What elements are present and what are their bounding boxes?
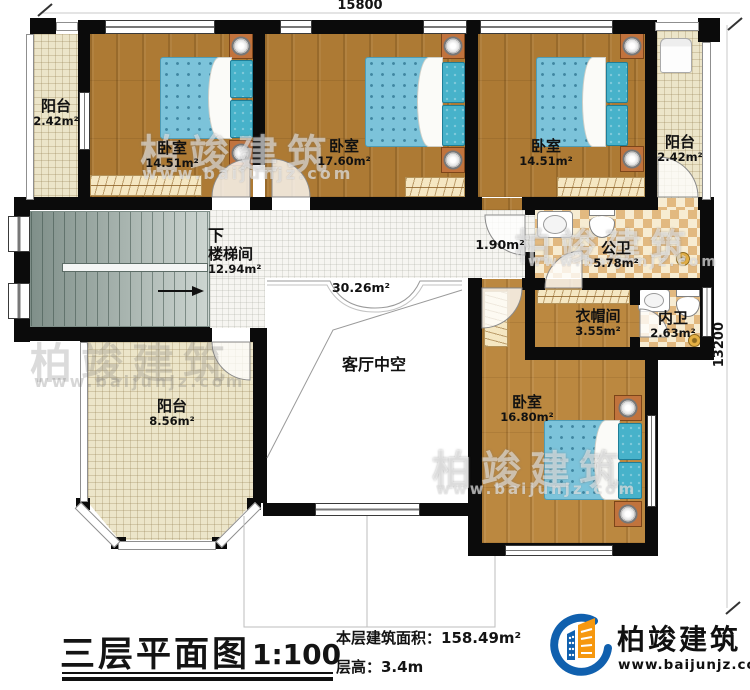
floor-area-text: 本层建筑面积：158.49m²	[336, 627, 521, 648]
bed-bedroom-2	[365, 57, 443, 147]
dimension-width: 15800	[330, 0, 390, 13]
window	[280, 20, 312, 34]
wall	[215, 20, 280, 34]
nightstand	[229, 140, 253, 166]
lamp-icon	[623, 150, 642, 169]
brand-url: www.baijunjz.com	[618, 657, 750, 673]
room-label-balcony-top-left: 阳台 2.42m²	[33, 98, 78, 128]
wardrobe-bedroom-2	[405, 177, 465, 197]
nightstand	[620, 146, 644, 172]
wall	[630, 288, 640, 305]
blanket	[208, 57, 232, 139]
title-underline	[62, 672, 333, 674]
wall	[30, 18, 56, 34]
window	[702, 287, 712, 337]
wardrobe-bedroom-4	[484, 291, 508, 347]
railing	[80, 342, 88, 502]
wall	[250, 197, 272, 210]
window	[423, 20, 467, 34]
lamp-icon	[444, 37, 463, 56]
railing	[702, 42, 711, 200]
pillow	[618, 462, 642, 499]
wall	[30, 197, 212, 210]
bedroom-3-door-threshold	[482, 198, 522, 210]
window	[505, 545, 613, 556]
brand-logo-icon	[540, 612, 614, 686]
drawing-scale: 1:100	[252, 638, 341, 671]
wall	[645, 20, 657, 207]
wall	[465, 20, 478, 207]
area-label-passage: 1.90m²	[475, 237, 524, 252]
sink	[537, 211, 573, 238]
room-label-living-void: 客厅中空	[342, 356, 406, 374]
wall	[263, 503, 315, 516]
blanket	[582, 57, 606, 147]
window	[647, 415, 656, 507]
room-label-balcony-top-right: 阳台 2.42m²	[657, 134, 702, 164]
nightstand	[441, 147, 465, 173]
brand-name: 柏竣建筑	[617, 618, 741, 658]
hallway-strip-floor	[210, 278, 265, 328]
room-label-bedroom-1: 卧室 14.51m²	[145, 140, 198, 170]
lamp-icon	[619, 505, 638, 524]
pillow	[442, 105, 465, 146]
lamp-icon	[619, 399, 638, 418]
wall	[468, 278, 482, 546]
wall	[418, 503, 470, 516]
floor-drain-icon	[676, 252, 690, 266]
blanket	[594, 420, 620, 500]
wall	[698, 18, 720, 42]
nightstand	[441, 33, 465, 59]
room-label-stairwell: 下 楼梯间 12.94m²	[208, 226, 261, 277]
floor-plan: 柏竣建筑 www.baijunjz.com 柏竣建筑 www.baijunjz.…	[0, 0, 750, 690]
bedroom-4-door-threshold	[482, 279, 522, 288]
pillow	[230, 60, 253, 98]
wall	[535, 347, 714, 360]
bed-bedroom-4	[544, 420, 620, 500]
window	[105, 20, 215, 34]
nightstand	[229, 33, 253, 59]
pillow	[618, 423, 642, 460]
living-void-floor	[267, 278, 468, 503]
window	[480, 20, 613, 34]
lamp-icon	[444, 151, 463, 170]
wall	[522, 197, 658, 210]
pillow	[230, 100, 253, 138]
toilet	[589, 206, 615, 238]
room-label-bedroom-3: 卧室 14.51m²	[519, 138, 572, 168]
window	[8, 283, 30, 319]
railing	[118, 541, 216, 550]
window	[8, 216, 30, 252]
area-label-hallway: 30.26m²	[332, 280, 390, 295]
room-label-ensuite-bathroom: 内卫 2.63m²	[650, 310, 695, 340]
nightstand	[614, 501, 642, 527]
floor-height-text: 层高：3.4m	[336, 656, 423, 677]
dimension-height: 13200	[712, 322, 727, 367]
wardrobe-bedroom-3	[557, 177, 645, 197]
basin-icon	[543, 215, 567, 234]
wall	[253, 342, 267, 503]
pillow	[606, 105, 628, 146]
room-label-bedroom-2: 卧室 17.60m²	[317, 138, 370, 168]
railing	[56, 22, 78, 31]
wall	[525, 252, 535, 360]
room-label-balcony-bottom-left: 阳台 8.56m²	[149, 398, 194, 428]
washing-machine	[660, 38, 692, 73]
wall	[253, 20, 265, 165]
wall	[525, 197, 535, 215]
stair-handrail	[62, 263, 208, 272]
lamp-icon	[623, 37, 642, 56]
basin-icon	[644, 293, 664, 308]
lamp-icon	[232, 37, 251, 56]
pillow	[442, 62, 465, 103]
blanket	[417, 57, 443, 147]
drawing-title: 三层平面图	[60, 626, 250, 677]
balcony-bottom-left-floor	[88, 342, 253, 540]
railing	[655, 22, 699, 31]
title-underline	[62, 677, 333, 681]
cloakroom-rack	[537, 289, 630, 304]
nightstand	[620, 33, 644, 59]
pillow	[606, 62, 628, 103]
bathroom-balcony-threshold	[658, 198, 698, 210]
nightstand	[614, 395, 642, 421]
wall	[582, 278, 700, 290]
room-label-public-bathroom: 公卫 5.78m²	[593, 240, 638, 270]
wall	[310, 197, 482, 210]
balcony-door-window	[79, 92, 90, 150]
toilet-bowl-icon	[589, 216, 615, 238]
cloakroom-door-threshold	[545, 279, 582, 288]
wall	[312, 20, 423, 34]
wall	[80, 328, 212, 342]
wardrobe-bedroom-1	[90, 175, 202, 196]
room-label-cloakroom: 衣帽间 3.55m²	[575, 308, 620, 338]
room-label-bedroom-4: 卧室 16.80m²	[500, 394, 553, 424]
lamp-icon	[232, 144, 251, 163]
window	[315, 503, 420, 516]
bed-bedroom-3	[536, 57, 606, 147]
bed-bedroom-1	[160, 57, 232, 139]
wall	[250, 328, 267, 342]
